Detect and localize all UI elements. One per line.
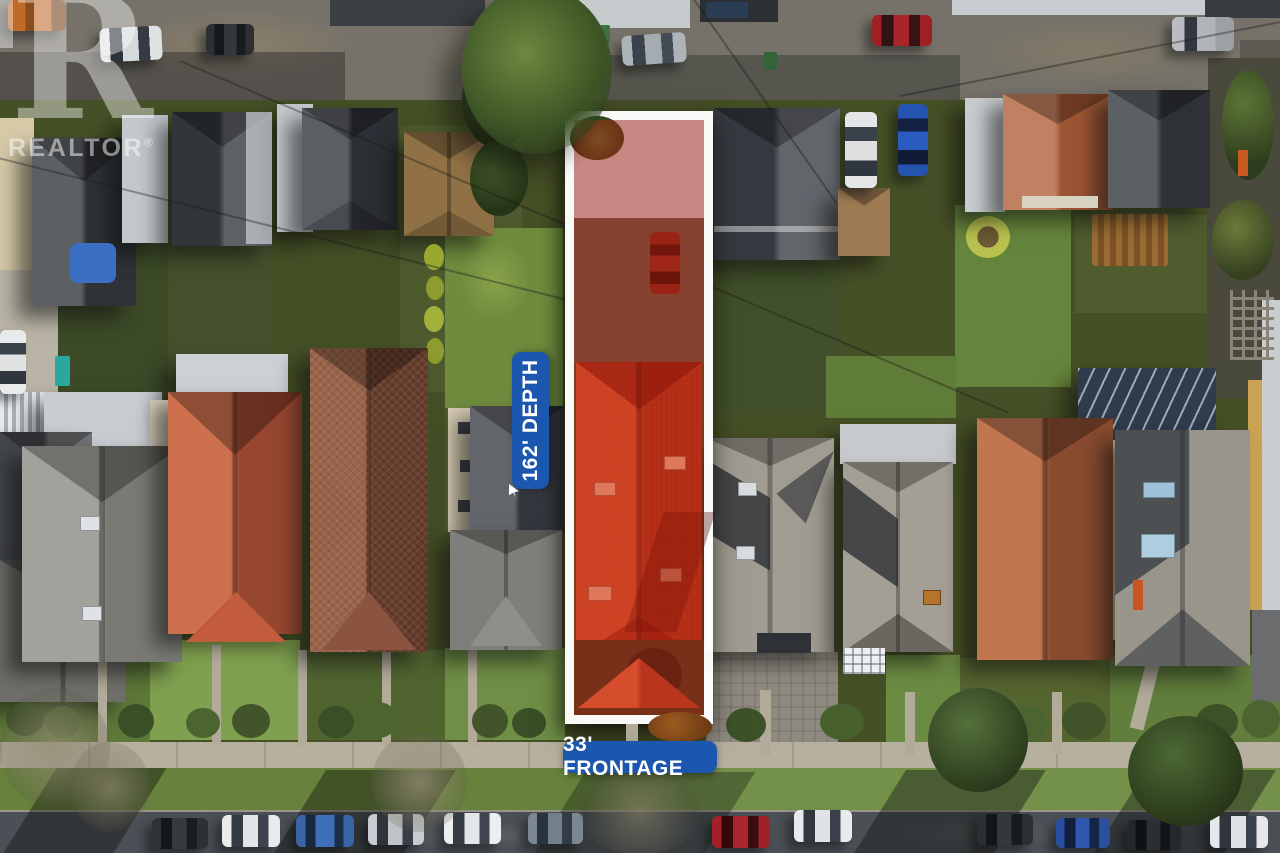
bush [426, 338, 444, 364]
blue-tarp [70, 243, 116, 283]
parked-car [794, 810, 852, 842]
hedge [186, 708, 220, 738]
bare-tree [372, 732, 467, 832]
orange-equipment [1238, 150, 1248, 176]
frontage-label-text: 33' FRONTAGE [563, 733, 717, 781]
bare-tree [70, 742, 150, 832]
scaffolding [1230, 290, 1274, 360]
play-structure [1092, 214, 1168, 266]
house-roof-orange [1003, 94, 1113, 210]
skylight [1141, 534, 1175, 558]
teal-bin [55, 356, 70, 386]
parked-car [152, 818, 208, 849]
walkway [905, 692, 915, 756]
bush [424, 306, 444, 332]
hedge [232, 704, 270, 738]
bush [426, 276, 444, 300]
hedge [1242, 700, 1280, 738]
porch-roof [757, 633, 811, 653]
hedge [318, 706, 354, 738]
gable-trim [1022, 196, 1098, 208]
roof-trim [714, 226, 840, 232]
green-bin [764, 52, 777, 70]
parked-car [222, 815, 280, 847]
house-roof [302, 108, 398, 230]
realtor-wordmark: REALTOR® [8, 134, 155, 163]
lawn [826, 356, 956, 418]
parked-van [296, 815, 354, 847]
parked-car [1056, 818, 1110, 848]
house-roof [1252, 610, 1280, 702]
house-roof [22, 446, 182, 662]
house-roof [1115, 430, 1250, 666]
backyard [718, 262, 840, 414]
realtor-logo: R [10, 0, 153, 144]
skylight [736, 546, 755, 560]
house-roof-terracotta [977, 418, 1113, 660]
parked-car [845, 112, 877, 188]
depth-label-text: 162' DEPTH [519, 359, 543, 481]
parked-car [872, 15, 932, 46]
garage-roof [840, 424, 956, 464]
hedge [1062, 702, 1106, 740]
realtor-brand-text: REALTOR [8, 134, 144, 162]
parked-car [621, 32, 687, 66]
parked-car [712, 816, 770, 848]
parked-car [528, 813, 583, 844]
lot-overlay [574, 120, 704, 715]
tree [928, 688, 1028, 792]
walkway [1052, 692, 1062, 754]
hedge [512, 708, 546, 738]
registered-mark: ® [144, 136, 155, 150]
tree [1212, 200, 1274, 280]
hedge [820, 704, 864, 740]
shed-roof [838, 188, 890, 256]
house-roof [843, 462, 953, 652]
hedge [358, 702, 398, 738]
roof-edge [1205, 0, 1280, 18]
parked-car [898, 104, 928, 176]
bare-tree [580, 770, 700, 853]
skylight [1143, 482, 1175, 498]
orange-chimney [1133, 580, 1143, 610]
parked-car [206, 24, 254, 55]
front-paving [706, 652, 838, 744]
garage-roof [965, 98, 1005, 212]
lot-highlight [565, 111, 713, 724]
chimney [923, 590, 941, 605]
round-garden-bed [966, 216, 1010, 258]
roof-edge [952, 0, 1207, 15]
parked-car [977, 814, 1033, 845]
skylight [738, 482, 757, 496]
parked-truck [1172, 17, 1234, 51]
house-roof [1108, 90, 1210, 208]
parked-car [0, 330, 26, 394]
hedge [118, 704, 154, 738]
frontage-label: 33' FRONTAGE [563, 741, 717, 773]
hedge [726, 708, 766, 742]
skylight [80, 516, 100, 531]
conservatory-glass [843, 648, 885, 674]
walkway [298, 650, 307, 746]
roof-edge [330, 0, 485, 26]
aerial-photo: R REALTOR® 162' DEPTH 33' FRONTAGE [0, 0, 1280, 853]
tree [1128, 716, 1243, 826]
skylight [82, 606, 102, 621]
depth-label: 162' DEPTH [512, 352, 549, 489]
solar-panel [706, 2, 748, 18]
parked-car [1210, 816, 1268, 848]
house-roof [706, 438, 834, 652]
hedge [472, 704, 508, 738]
tree [1222, 70, 1274, 180]
